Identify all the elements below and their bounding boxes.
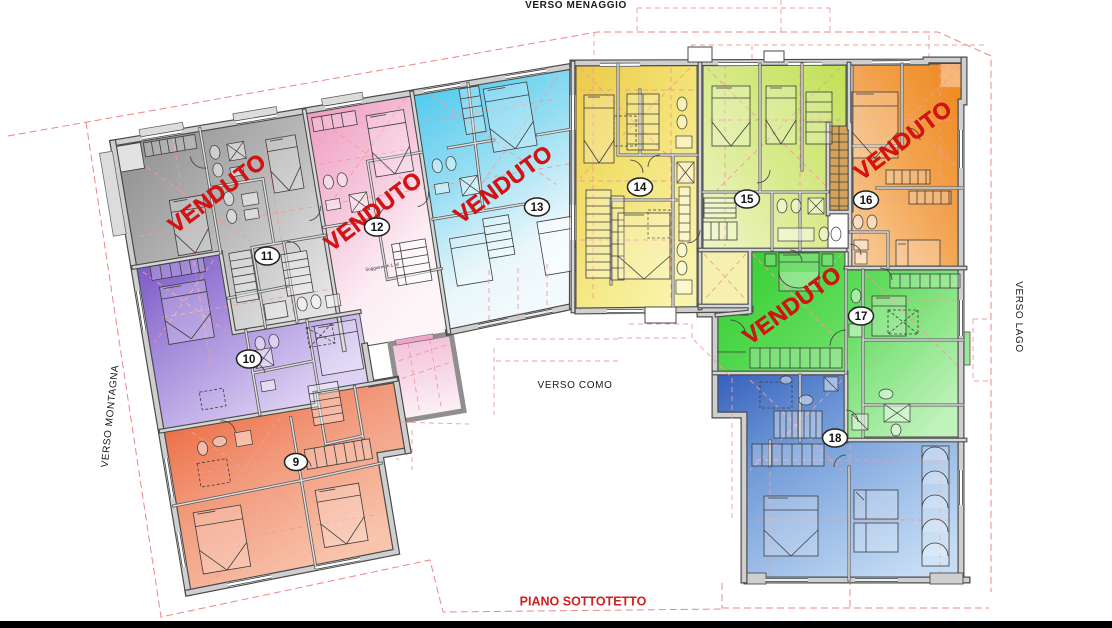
svg-text:13: 13 — [531, 202, 544, 214]
svg-text:12: 12 — [371, 222, 384, 234]
svg-text:11: 11 — [261, 251, 274, 263]
svg-text:18: 18 — [829, 433, 842, 445]
svg-text:VERSO COMO: VERSO COMO — [538, 380, 613, 391]
svg-text:10: 10 — [243, 354, 256, 366]
svg-text:15: 15 — [741, 194, 754, 206]
svg-text:VERSO MENAGGIO: VERSO MENAGGIO — [525, 0, 627, 11]
svg-text:17: 17 — [855, 311, 868, 323]
svg-text:14: 14 — [634, 182, 647, 194]
svg-text:VERSO LAGO: VERSO LAGO — [1013, 281, 1024, 353]
svg-text:PIANO SOTTOTETTO: PIANO SOTTOTETTO — [520, 595, 647, 609]
svg-text:9: 9 — [293, 457, 299, 469]
svg-text:16: 16 — [860, 195, 873, 207]
